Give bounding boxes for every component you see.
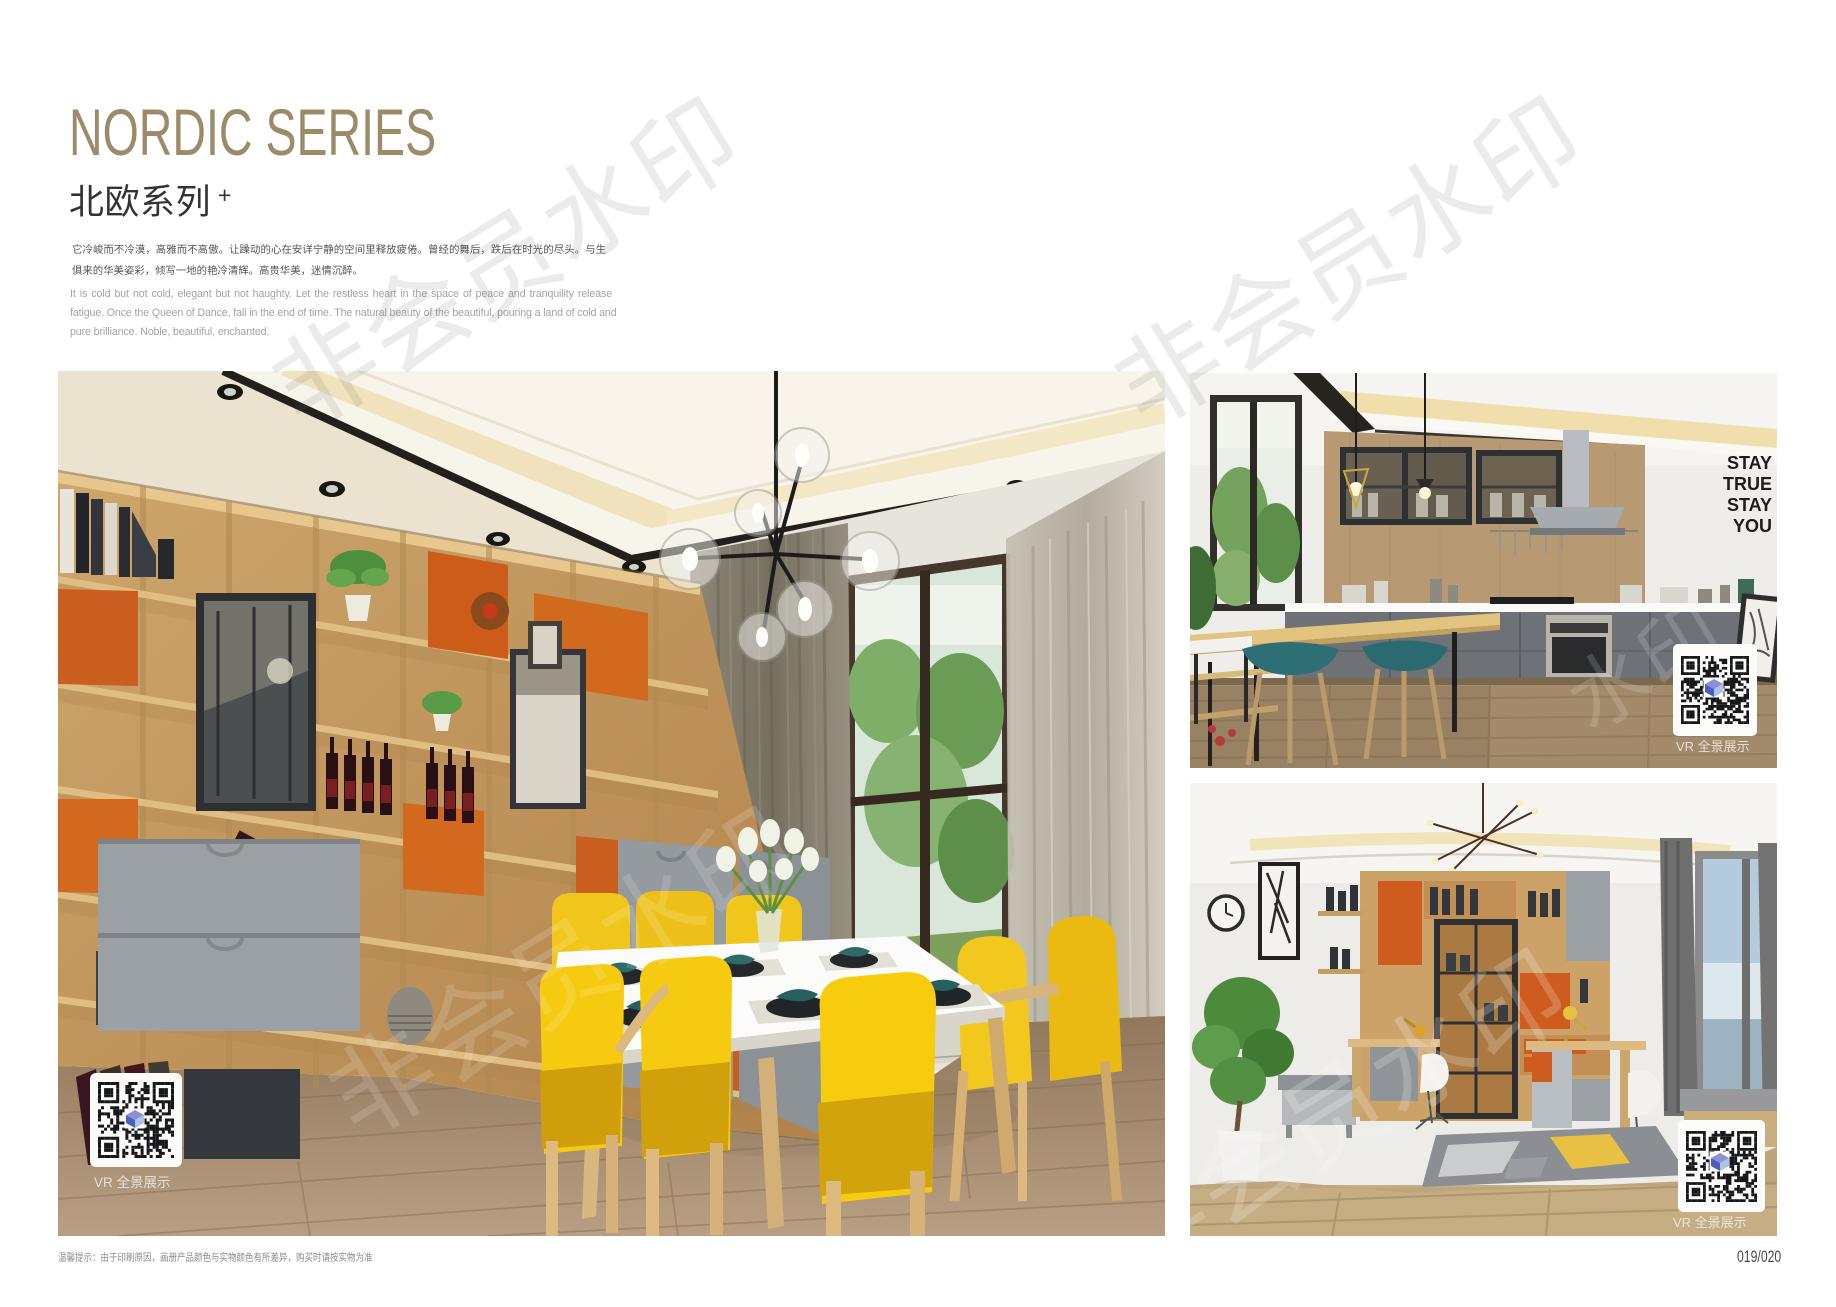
svg-text:STAY: STAY xyxy=(1727,495,1772,515)
svg-text:STAY: STAY xyxy=(1727,453,1772,473)
svg-text:VR 全景展示: VR 全景展示 xyxy=(94,1174,171,1190)
svg-text:YOU: YOU xyxy=(1733,516,1772,536)
svg-text:VR 全景展示: VR 全景展示 xyxy=(1673,1215,1747,1230)
svg-text:TRUE: TRUE xyxy=(1723,474,1772,494)
svg-text:VR 全景展示: VR 全景展示 xyxy=(1676,739,1750,754)
